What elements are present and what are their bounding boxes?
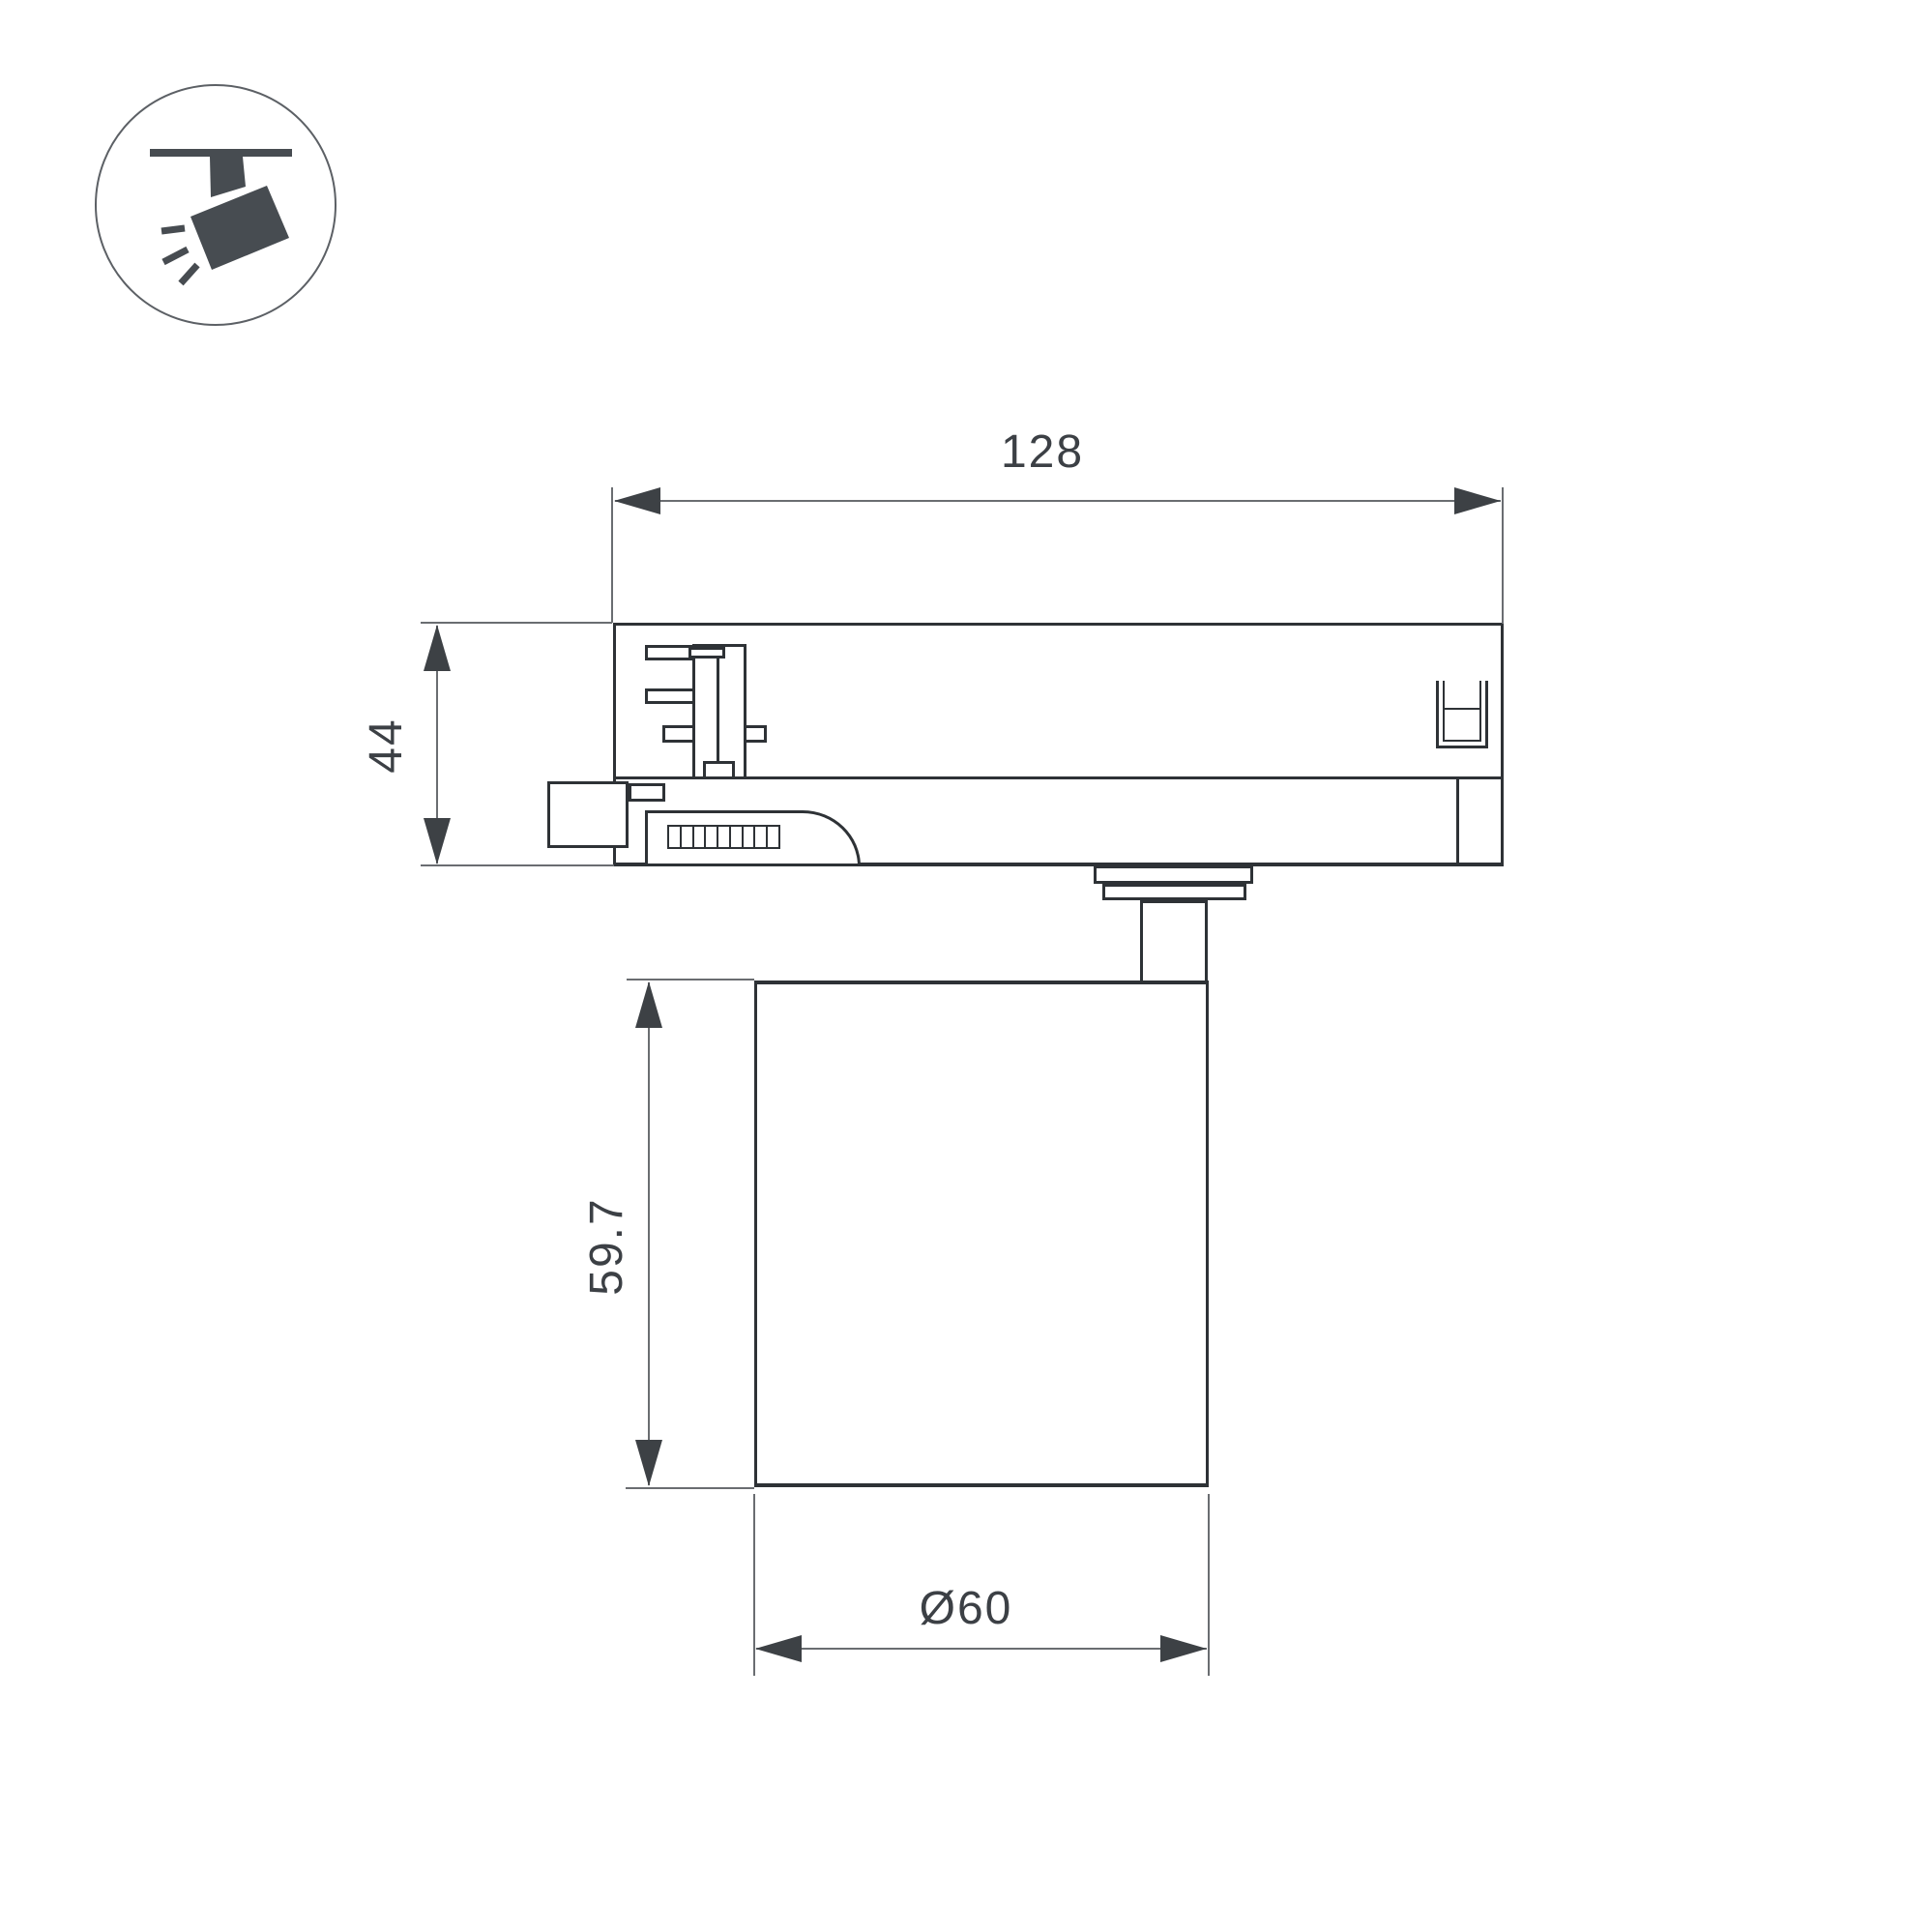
track-spotlight-icon (77, 68, 358, 348)
dim-59-arrow-up (635, 981, 662, 1028)
ground-contact-clip (1436, 681, 1488, 748)
lamp-body (754, 981, 1209, 1487)
dim-128-line (615, 500, 1501, 502)
dim-128-arrow-right (1454, 487, 1501, 514)
dim-128-ext-right (1502, 487, 1504, 624)
mount-step-upper (1094, 865, 1253, 884)
contact-post-line (717, 659, 719, 761)
lock-latch (629, 783, 665, 802)
lock-knob-block (547, 781, 629, 848)
adapter-divider-line (613, 776, 1504, 779)
dim-59-line (648, 982, 650, 1485)
dim-59-ext-bottom (626, 1487, 754, 1489)
dim-44-arrow-down (424, 818, 451, 864)
dim-59-arrow-down (635, 1440, 662, 1486)
pivot-stem (1140, 900, 1208, 983)
dim-128-ext-left (611, 487, 613, 623)
dim-60-ext-right (1208, 1494, 1210, 1676)
ground-contact-clip-inner (1443, 681, 1481, 742)
dim-60-line (756, 1648, 1207, 1650)
dim-44-ext-bottom (421, 864, 614, 866)
dim-60-arrow-right (1160, 1635, 1207, 1662)
drawing-canvas: 128 44 59.7 Ø60 (0, 0, 1932, 1932)
adjust-slider-strip (667, 825, 780, 849)
dim-44-label: 44 (363, 697, 411, 794)
contact-cap (688, 647, 725, 659)
dim-128-arrow-left (614, 487, 660, 514)
contact-assembly-body (692, 644, 746, 779)
dim-44-ext-top (421, 622, 612, 624)
ground-contact-clip-bar (1445, 708, 1479, 710)
contact-foot (703, 761, 735, 779)
dim-128-label: 128 (946, 425, 1139, 479)
dim-44-arrow-up (424, 625, 451, 671)
contact-prong-bottom (662, 725, 695, 743)
icon-circle (96, 85, 336, 325)
adapter-end-cap-line (1456, 778, 1459, 866)
dim-60-label: Ø60 (869, 1582, 1063, 1635)
mount-step-lower (1102, 884, 1246, 900)
contact-prong-middle (645, 688, 695, 704)
dim-59-ext-top (627, 979, 754, 981)
dim-59-label: 59.7 (583, 1169, 631, 1324)
dim-60-arrow-left (755, 1635, 802, 1662)
icon-track-bar (150, 149, 292, 157)
contact-notch-right (744, 725, 767, 743)
